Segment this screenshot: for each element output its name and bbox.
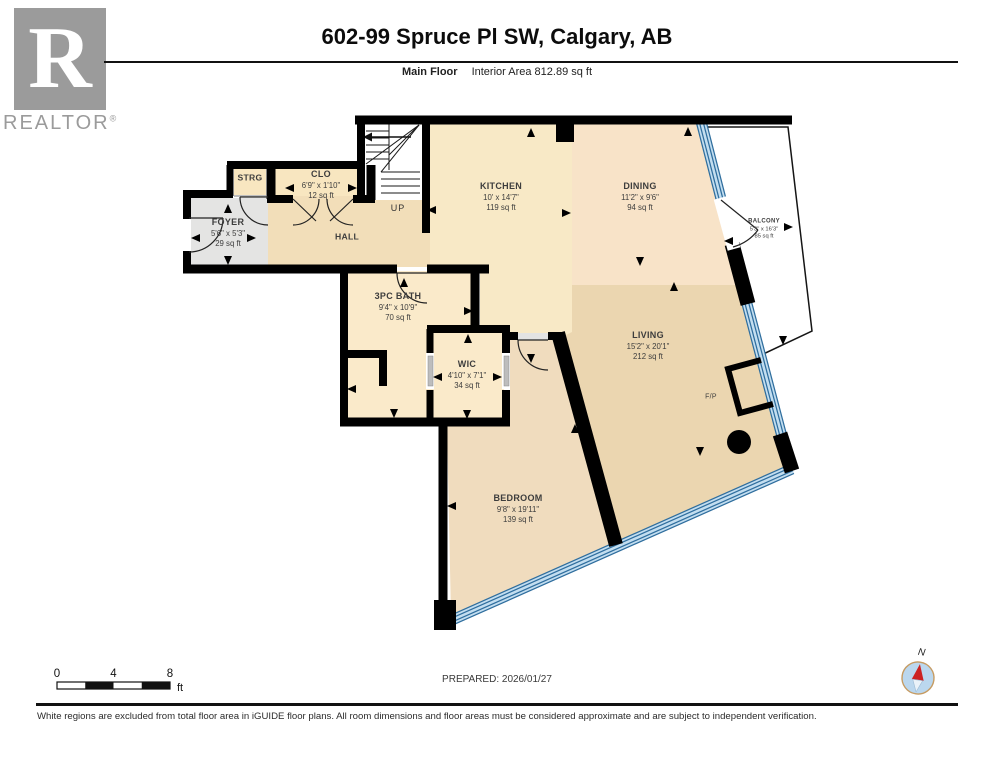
wic-sliding-door-right [504,356,509,386]
compass-icon: N [893,640,945,700]
entry-door-gap [182,219,191,251]
room-label-bath: 3PC BATH9'4" x 10'9"70 sq ft [375,291,422,323]
room-label-clo: CLO6'9" x 1'10"12 sq ft [302,169,340,201]
fireplace-label: F/P [705,392,717,401]
wic-sliding-door-left [428,356,433,386]
compass-north-label: N [917,647,926,659]
bedroom-door-threshold [518,333,548,340]
floorplan-drawing [0,0,994,768]
structural-column [727,430,751,454]
prepared-date: PREPARED: 2026/01/27 [0,674,994,685]
room-label-balcony: BALCONY5'3" x 16'3"85 sq ft [748,219,780,242]
room-label-strg: STRG [237,172,262,183]
room-label-bedroom: BEDROOM9'8" x 19'11"139 sq ft [493,493,542,525]
floorplan-page: R REALTOR® 602-99 Spruce Pl SW, Calgary,… [0,0,994,768]
room-label-living: LIVING15'2" x 20'1"212 sq ft [627,330,670,362]
room-label-kitchen: KITCHEN10' x 14'7"119 sq ft [480,181,522,213]
disclaimer-text: White regions are excluded from total fl… [37,711,962,722]
room-label-foyer: FOYER5'6" x 5'3"29 sq ft [211,217,245,249]
room-label-dining: DINING11'2" x 9'6"94 sq ft [621,181,659,213]
footer-divider-line [36,703,958,706]
stairs-up-label: UP [391,203,406,215]
room-label-hall: HALL [335,231,359,242]
room-label-wic: WIC4'10" x 7'1"34 sq ft [448,359,486,391]
